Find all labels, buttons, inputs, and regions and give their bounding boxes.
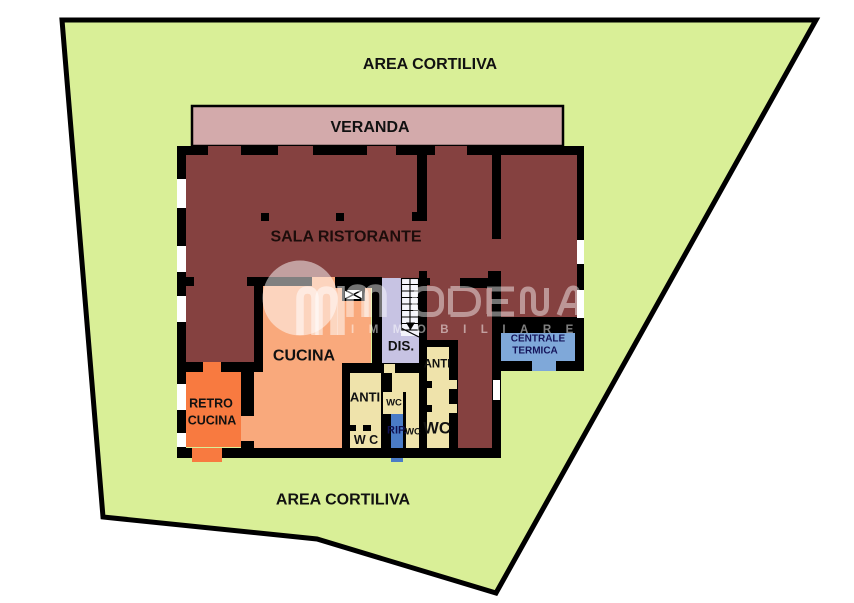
svg-text:CUCINA: CUCINA [188,414,237,428]
svg-text:IMMOBILIARE: IMMOBILIARE [351,324,588,336]
svg-text:ANTI: ANTI [350,390,380,405]
svg-text:TERMICA: TERMICA [512,346,558,357]
svg-text:RIP.: RIP. [387,425,407,437]
svg-text:DIS.: DIS. [388,339,414,354]
svg-text:CUCINA: CUCINA [273,348,336,365]
svg-text:RETRO: RETRO [189,397,233,411]
svg-text:WC: WC [386,398,402,409]
svg-text:ANTI: ANTI [424,359,451,371]
svg-text:W C: W C [354,433,378,447]
svg-text:AREA CORTILIVA: AREA CORTILIVA [276,492,411,509]
svg-text:WC: WC [405,427,421,438]
svg-text:WC: WC [423,420,451,438]
svg-text:SALA RISTORANTE: SALA RISTORANTE [270,229,421,246]
svg-text:VERANDA: VERANDA [330,119,410,136]
svg-text:AREA CORTILIVA: AREA CORTILIVA [363,56,498,73]
